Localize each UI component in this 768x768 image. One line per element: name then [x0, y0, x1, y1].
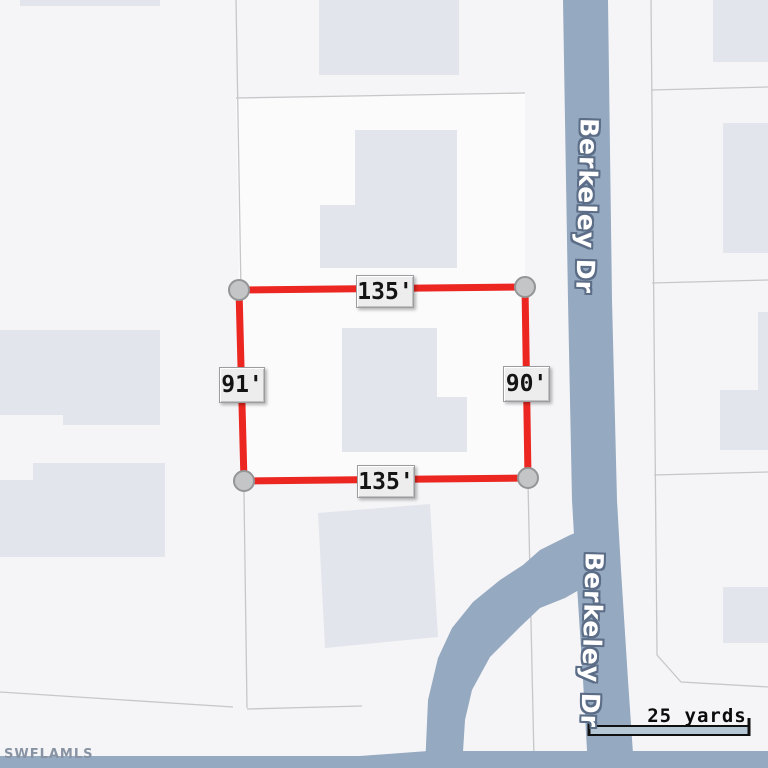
building-footprint-top-edge	[20, 0, 160, 6]
lot-corner-marker-se	[518, 468, 538, 488]
building-footprint-east-3	[720, 312, 768, 450]
road-label-berkeley-dr-south: Berkeley Dr	[575, 552, 609, 729]
parcel-line-east-1	[651, 87, 768, 90]
parcel-line-south-of-lot	[528, 483, 534, 760]
building-footprint-north	[319, 0, 459, 75]
building-footprint-east-4	[723, 587, 768, 643]
parcel-line-east-vertical	[651, 0, 768, 687]
parcel-map: 25 yards Berkeley Dr Berkeley Dr 135' 90…	[0, 0, 768, 768]
building-footprint-west-2	[0, 463, 165, 557]
scale-bar-rule	[589, 726, 749, 735]
building-footprint-east-2	[723, 123, 768, 253]
road-label-berkeley-dr-north: Berkeley Dr	[570, 118, 604, 295]
dimension-label-right: 90'	[503, 366, 550, 402]
map-canvas: 25 yards	[0, 0, 768, 768]
mls-watermark: SWFLAMLS	[4, 747, 94, 762]
lot-corner-marker-sw	[234, 471, 254, 491]
parcel-line-southwest	[0, 692, 362, 709]
dimension-label-left: 91'	[219, 367, 265, 403]
scale-bar-label: 25 yards	[647, 705, 747, 727]
building-footprint-south	[318, 504, 438, 648]
lot-corner-marker-ne	[515, 277, 535, 297]
dimension-label-top: 135'	[356, 275, 414, 308]
parcel-line-east-3	[654, 472, 768, 475]
building-footprint-east-1	[713, 0, 768, 62]
road-bottom	[0, 751, 768, 768]
parcel-line-east-2	[652, 280, 768, 283]
dimension-label-bottom: 135'	[357, 465, 415, 498]
building-footprint-west-1	[0, 330, 160, 425]
lot-corner-marker-nw	[229, 280, 249, 300]
